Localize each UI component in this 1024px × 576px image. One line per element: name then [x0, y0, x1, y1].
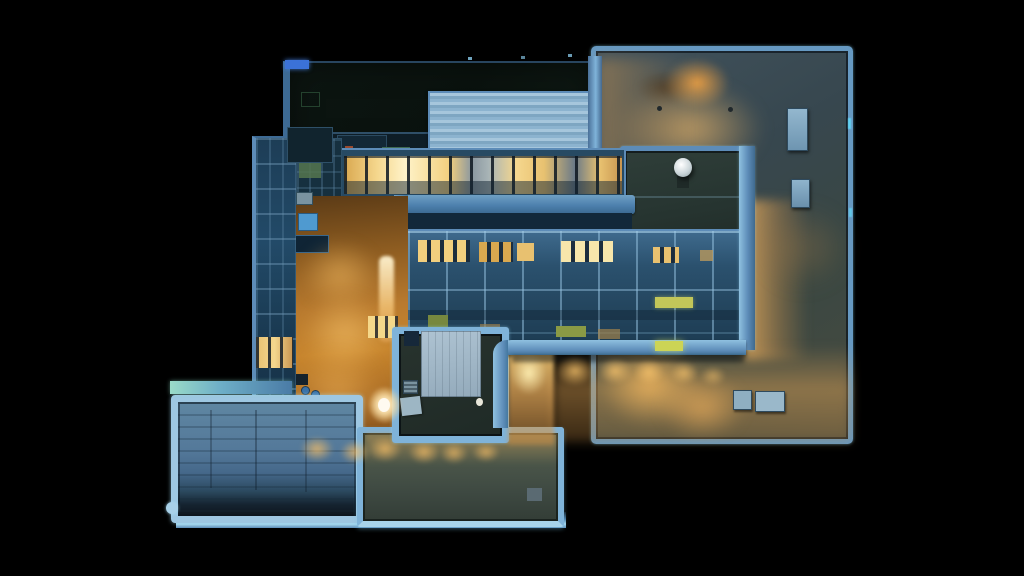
light-pool-5	[440, 442, 468, 464]
lit-office-dim	[700, 250, 713, 261]
square-roof-white-dot	[476, 398, 483, 406]
wing-seam-2	[255, 410, 257, 490]
light-pool-4	[408, 440, 440, 464]
wing-top-lit-band	[170, 381, 292, 394]
bottom-left-wing-roof	[171, 395, 363, 523]
square-roof-dark-box	[404, 331, 419, 346]
rooftop-box-1	[733, 390, 752, 410]
edge-speck-3	[568, 54, 572, 57]
parapet-edge-speck-2	[849, 208, 852, 217]
courtyard-dark-box	[295, 374, 308, 385]
roof-glow-mid-right	[758, 205, 850, 290]
square-roof-tile	[400, 396, 422, 416]
light-pool-r2	[598, 358, 632, 384]
glass-mullion-line-2	[408, 289, 748, 291]
lower-light-2	[556, 326, 586, 337]
facade-rooftop-box	[287, 127, 333, 163]
lit-office-cluster-1	[418, 240, 470, 262]
walkway-light	[655, 341, 683, 351]
courtyard-skylight-1	[296, 192, 313, 205]
lit-office-cluster-2	[479, 242, 513, 262]
rooftop-box-2	[755, 391, 785, 412]
pipe-fitting-1	[301, 386, 310, 395]
wing-corner-knob	[166, 502, 178, 514]
light-pool-r4	[670, 362, 698, 384]
lower-light-3	[655, 297, 693, 308]
atrium-parapet-right	[739, 146, 755, 350]
light-pool-r1	[556, 356, 594, 386]
wing-seam-1	[210, 410, 212, 488]
dome-vent-shadow	[677, 176, 689, 188]
edge-speck-1	[468, 57, 472, 60]
edge-speck-2	[521, 56, 525, 59]
rooftop-vent-2	[791, 179, 810, 208]
light-pool-1	[300, 436, 334, 462]
blue-accent-light	[285, 60, 309, 69]
courtyard-hot-core	[378, 398, 390, 412]
courtyard-skylight-2	[298, 213, 318, 231]
glass-mullion-line-1	[408, 231, 748, 233]
lit-office-cluster-3	[517, 243, 534, 261]
light-pool-r5	[700, 366, 726, 386]
parapet-band-vertical	[493, 340, 508, 428]
ribbed-roof-parapet	[588, 56, 602, 158]
light-pool-2	[340, 440, 370, 464]
aerial-photo-building-complex	[0, 0, 1024, 576]
glass-dark-band	[408, 310, 748, 320]
lit-office-cluster-5	[653, 247, 679, 263]
inner-roof-seam	[629, 196, 741, 198]
light-pool-6	[472, 442, 500, 462]
facade-lit-windows	[256, 337, 293, 368]
terrace-box	[527, 488, 542, 501]
light-pool-r3	[634, 360, 664, 384]
parapet-band-horizontal	[498, 340, 746, 355]
roof-hatch-outline	[301, 92, 320, 107]
parapet-edge-speck-1	[848, 118, 851, 129]
lit-office-cluster-4	[561, 241, 613, 262]
clerestory-lit-windows	[344, 156, 622, 194]
rooftop-vent-1	[787, 108, 808, 151]
square-roof-grid-object	[403, 380, 418, 394]
dome-vent	[674, 158, 692, 177]
atrium-parapet-top	[393, 195, 635, 214]
roof-drain-1	[657, 106, 662, 111]
left-ext-lit-pane	[299, 163, 321, 178]
square-roof-panel	[421, 331, 481, 397]
roof-drain-2	[728, 107, 733, 112]
lower-dim-2	[598, 329, 620, 339]
